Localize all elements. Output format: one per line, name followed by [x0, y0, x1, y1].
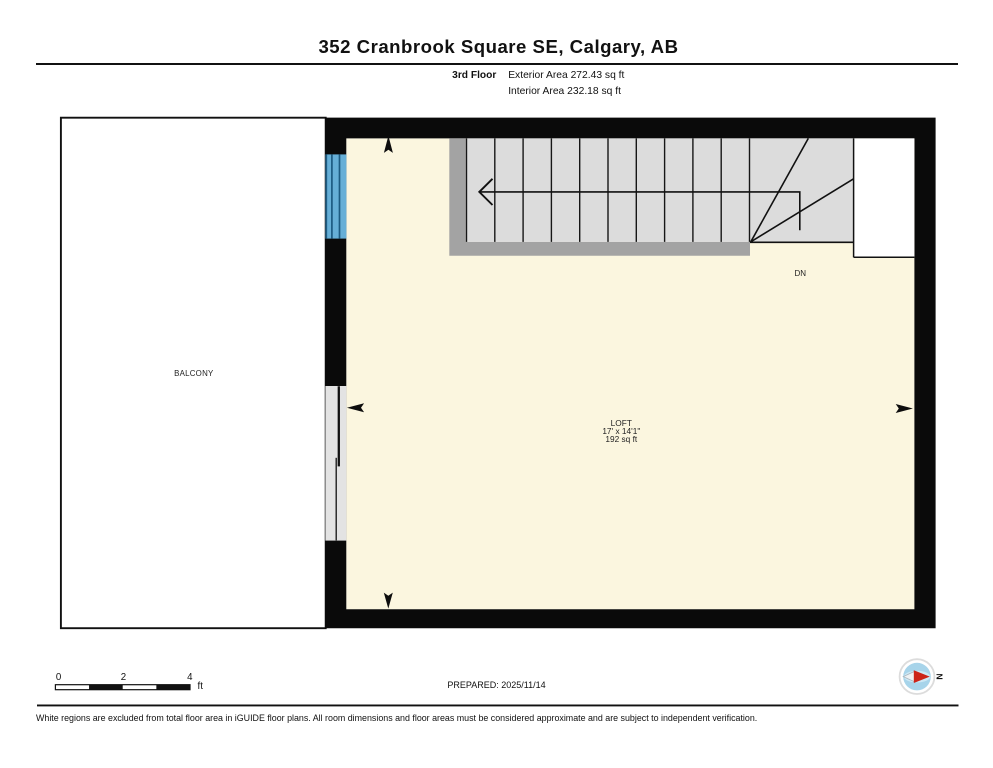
- svg-text:N: N: [935, 674, 945, 680]
